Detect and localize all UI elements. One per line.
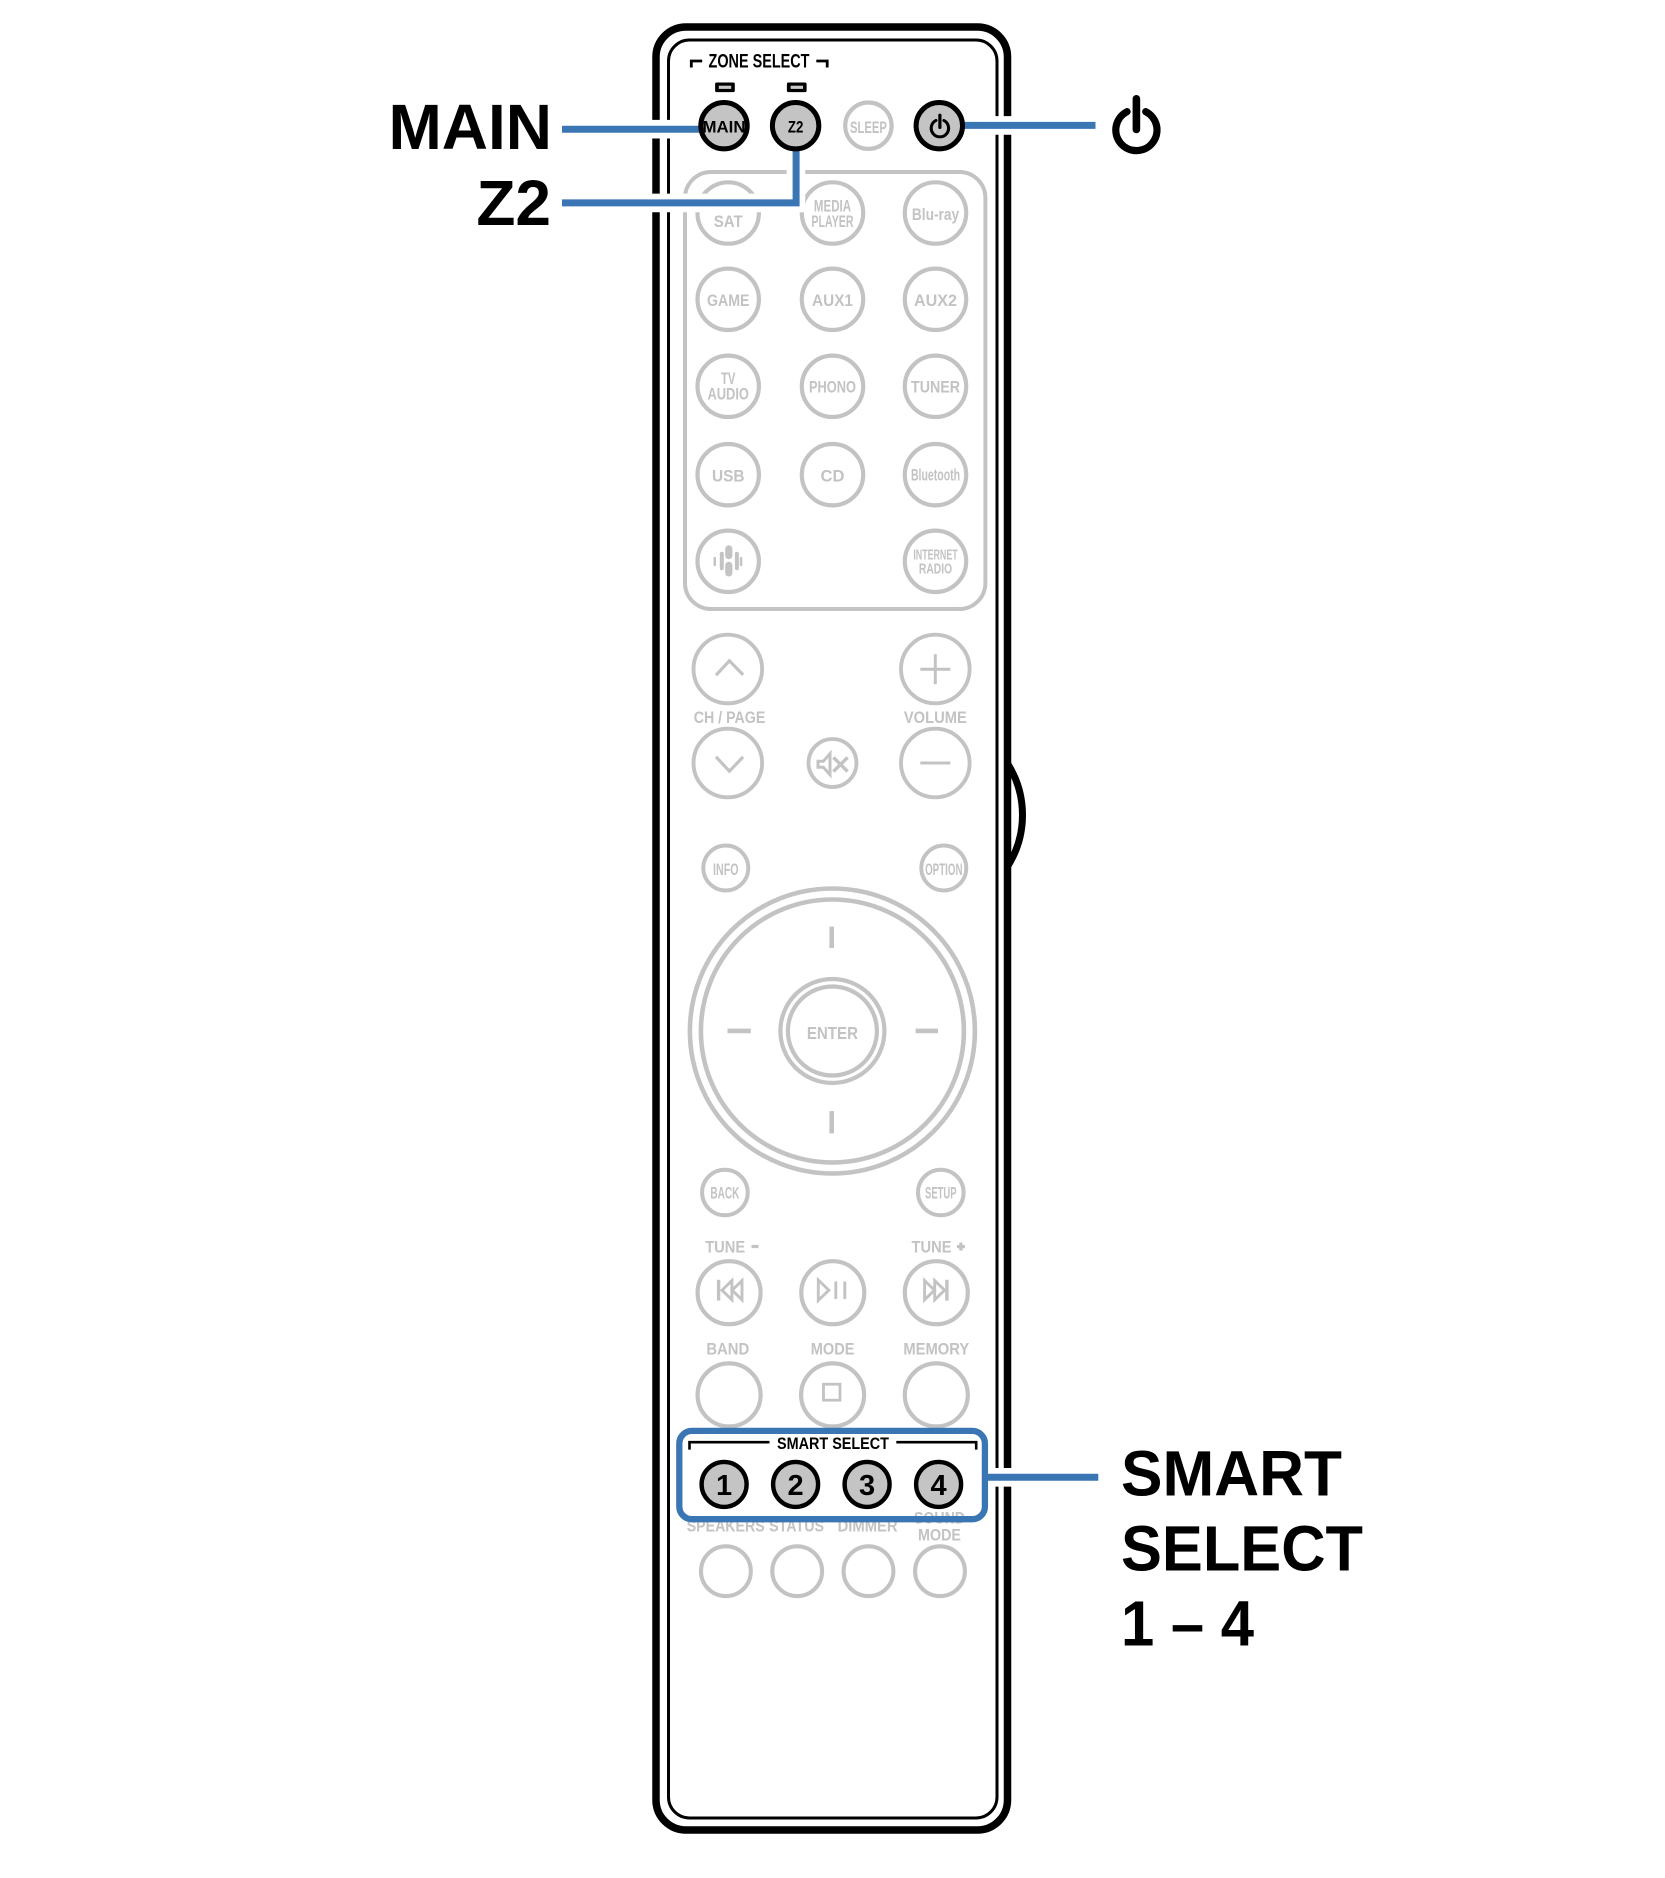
svg-text:MEMORY: MEMORY xyxy=(903,1340,969,1358)
svg-text:BAND: BAND xyxy=(706,1340,749,1358)
svg-text:SELECT: SELECT xyxy=(1121,1513,1363,1585)
svg-text:OPTION: OPTION xyxy=(925,859,962,879)
svg-text:2: 2 xyxy=(788,1470,804,1502)
svg-text:PHONO: PHONO xyxy=(809,378,856,397)
svg-text:ENTER: ENTER xyxy=(807,1024,858,1043)
svg-text:RADIO: RADIO xyxy=(919,559,952,577)
svg-text:SMART: SMART xyxy=(1121,1438,1342,1510)
svg-text:USB: USB xyxy=(712,467,744,486)
svg-text:TUNE: TUNE xyxy=(705,1238,745,1256)
svg-text:CD: CD xyxy=(821,466,845,485)
svg-text:AUX1: AUX1 xyxy=(812,291,853,310)
svg-text:Bluetooth: Bluetooth xyxy=(911,466,960,484)
svg-text:MAIN: MAIN xyxy=(703,118,746,137)
svg-text:3: 3 xyxy=(859,1470,875,1502)
svg-text:AUDIO: AUDIO xyxy=(707,385,749,404)
svg-text:MAIN: MAIN xyxy=(388,91,552,163)
svg-text:SETUP: SETUP xyxy=(925,1184,956,1203)
svg-text:AUX2: AUX2 xyxy=(914,291,957,310)
svg-text:INFO: INFO xyxy=(713,860,738,879)
svg-text:SLEEP: SLEEP xyxy=(850,119,887,138)
svg-text:MODE: MODE xyxy=(811,1340,855,1358)
svg-text:Z2: Z2 xyxy=(788,118,803,137)
svg-text:PLAYER: PLAYER xyxy=(811,212,853,231)
svg-text:Z2: Z2 xyxy=(476,167,551,239)
svg-text:VOLUME: VOLUME xyxy=(904,709,967,727)
svg-text:Blu-ray: Blu-ray xyxy=(912,206,960,225)
svg-text:ZONE SELECT: ZONE SELECT xyxy=(709,50,811,71)
svg-text:GAME: GAME xyxy=(707,292,749,310)
svg-text:TUNE: TUNE xyxy=(912,1238,952,1256)
svg-text:BACK: BACK xyxy=(710,1183,739,1202)
svg-text:TUNER: TUNER xyxy=(911,378,960,396)
svg-text:CH / PAGE: CH / PAGE xyxy=(694,709,766,727)
svg-text:SMART SELECT: SMART SELECT xyxy=(777,1435,889,1453)
svg-text:SAT: SAT xyxy=(714,212,743,231)
svg-text:1 – 4: 1 – 4 xyxy=(1121,1588,1254,1660)
svg-text:1: 1 xyxy=(716,1470,732,1502)
svg-text:MODE: MODE xyxy=(918,1526,961,1544)
svg-text:4: 4 xyxy=(931,1470,947,1502)
